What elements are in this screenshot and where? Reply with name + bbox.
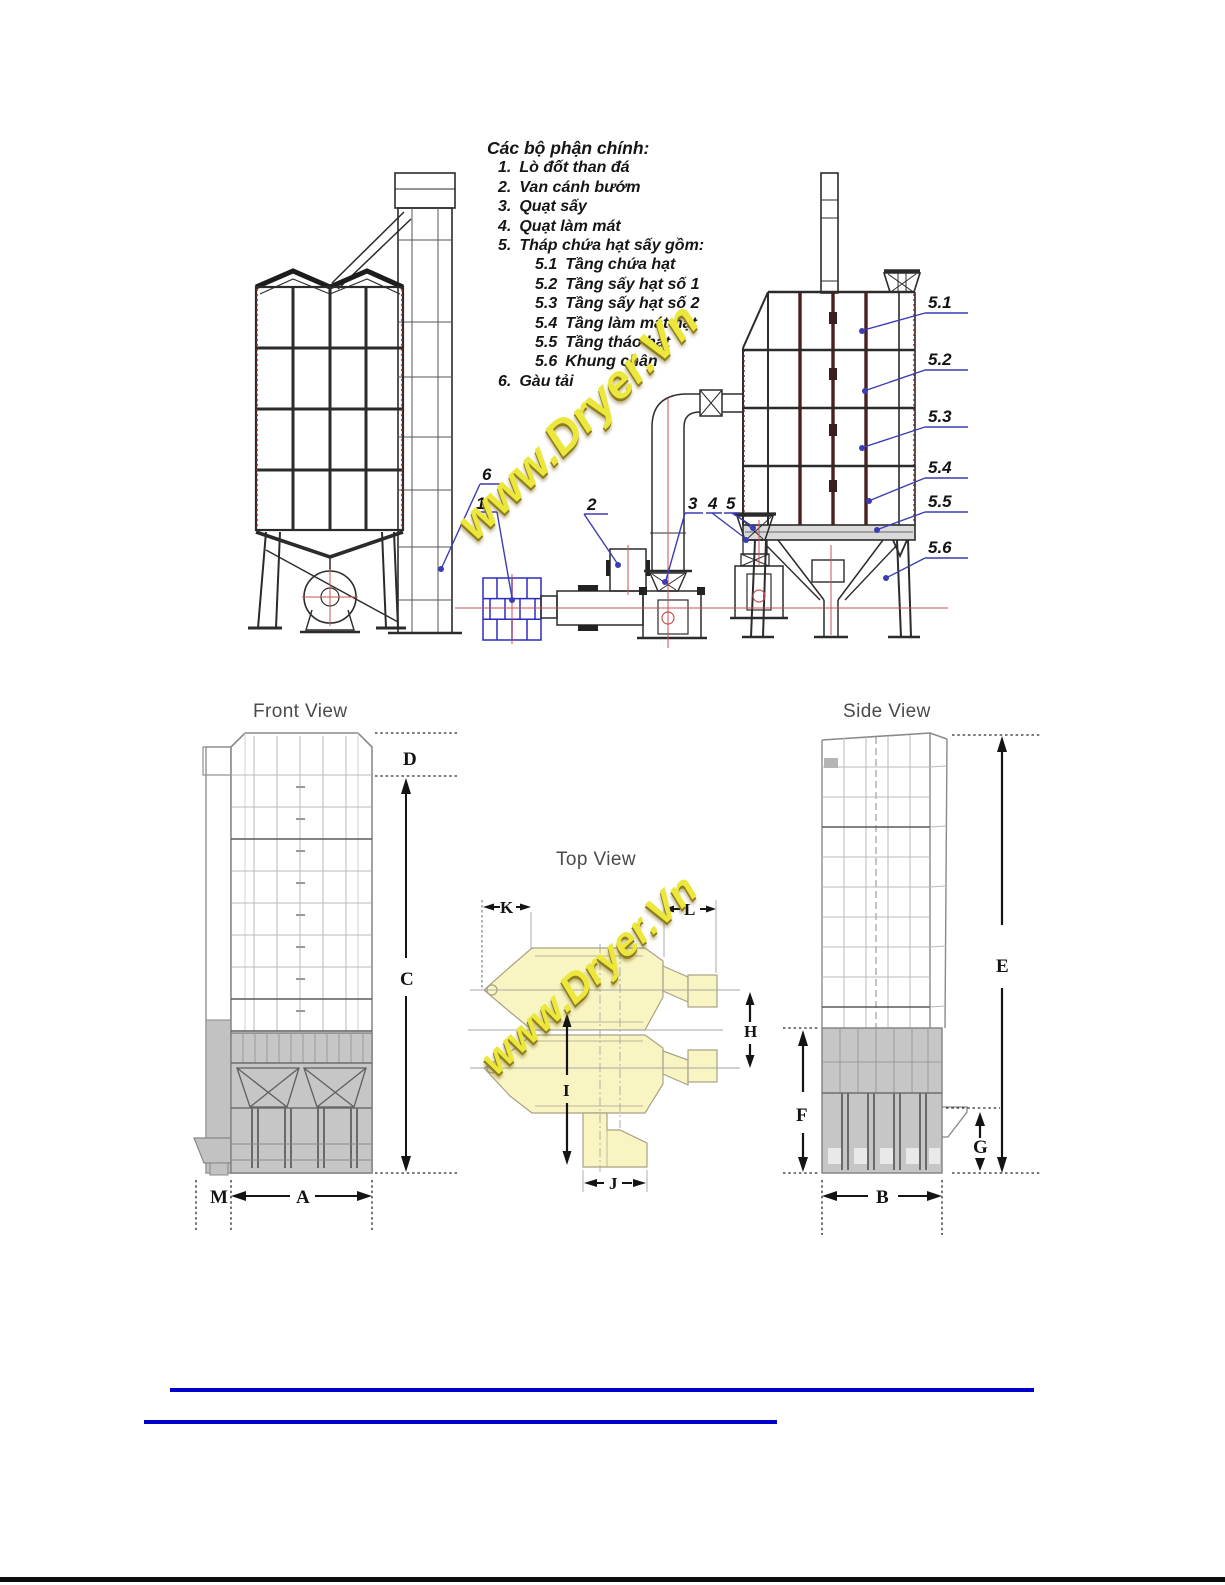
dim-label-M: M — [210, 1187, 228, 1208]
legend-item-1: 1.Lò đốt than đá — [487, 158, 704, 177]
legend-num: 5.6 — [535, 352, 557, 371]
dim-label-F: F — [796, 1105, 808, 1126]
legend-num: 6. — [498, 372, 511, 391]
legend-num: 5.4 — [535, 314, 557, 333]
hot-air-duct — [541, 549, 650, 631]
dim-label-A: A — [296, 1187, 310, 1208]
dim-label-B: B — [876, 1187, 889, 1208]
dim-label-G: G — [973, 1137, 988, 1158]
legend-num: 4. — [498, 217, 511, 236]
dim-label-C: C — [400, 969, 414, 990]
bottom-hopper — [778, 540, 883, 637]
legend-text: Tầng sấy hạt số 1 — [565, 275, 699, 294]
chimney — [821, 173, 838, 293]
side-view-drawing: E F G B — [783, 733, 1040, 1235]
legend-num: 5.1 — [535, 255, 557, 274]
legend-text: Quạt làm mát — [519, 217, 620, 236]
dim-label-E: E — [996, 956, 1009, 977]
legend-text: Lò đốt than đá — [519, 158, 629, 177]
bottom-blower-fan — [300, 569, 360, 632]
legend-text: Quạt sấy — [519, 197, 587, 216]
hyperlink-underline-1[interactable] — [170, 1388, 1034, 1392]
callout-5-4: 5.4 — [928, 458, 952, 477]
legend-item-5: 5.Tháp chứa hạt sấy gồm: — [487, 236, 704, 255]
vertical-pipe-elbow — [650, 390, 743, 571]
callout-5: 5 — [726, 494, 736, 513]
callout-5-5: 5.5 — [928, 492, 952, 511]
legend-item-3: 3.Quạt sấy — [487, 197, 704, 216]
sv-side-chute — [942, 1107, 967, 1137]
dim-label-H: H — [744, 1022, 757, 1041]
hyperlink-underline-2[interactable] — [144, 1420, 777, 1424]
legend-item-2: 2.Van cánh bướm — [487, 178, 704, 197]
callout-5-6: 5.6 — [928, 538, 952, 557]
legend-num: 5.3 — [535, 294, 557, 313]
callout-4: 4 — [707, 494, 718, 513]
callout-3: 3 — [688, 494, 698, 513]
legend-num: 5.2 — [535, 275, 557, 294]
legend-text: Gàu tải — [519, 372, 573, 391]
document-page: 6 1 2 3 4 5 5.1 5.2 5.3 5.4 5.5 5.6 — [0, 0, 1225, 1585]
grain-chute — [332, 212, 411, 289]
dim-label-K: K — [500, 898, 514, 917]
legend-title: Các bộ phận chính: — [487, 139, 704, 158]
tower-hopper — [256, 532, 403, 557]
dim-label-I: I — [563, 1081, 570, 1100]
dim-label-J: J — [609, 1174, 618, 1193]
callout-5-1: 5.1 — [928, 293, 952, 312]
front-view-title: Front View — [253, 701, 347, 723]
legend-text: Van cánh bướm — [519, 178, 640, 197]
legend-item-4: 4.Quạt làm mát — [487, 217, 704, 236]
callout-2: 2 — [586, 495, 597, 514]
right-tower-drawing — [730, 173, 920, 637]
bucket-elevator-head — [395, 173, 455, 208]
legend-num: 3. — [498, 197, 511, 216]
legend-num: 1. — [498, 158, 511, 177]
top-view-title: Top View — [556, 849, 636, 871]
legend-item-5-1: 5.1Tầng chứa hạt — [487, 255, 704, 274]
callout-5-3: 5.3 — [928, 407, 952, 426]
callout-5-2: 5.2 — [928, 350, 952, 369]
legend-text: Tầng chứa hạt — [565, 255, 675, 274]
tower-legs — [258, 532, 398, 628]
legend-text: Tháp chứa hạt sấy gồm: — [519, 236, 704, 255]
elevator-head-hopper — [884, 271, 920, 292]
dim-label-D: D — [403, 749, 417, 770]
tower-roof — [256, 271, 403, 287]
legend-num: 5.5 — [535, 333, 557, 352]
legend-num: 5. — [498, 236, 511, 255]
front-view-drawing: D C A M — [194, 733, 458, 1230]
legend-num: 2. — [498, 178, 511, 197]
side-view-title: Side View — [843, 701, 931, 723]
drying-fan — [637, 571, 707, 638]
page-border-bottom — [0, 1577, 1225, 1582]
left-tower-drawing — [248, 173, 462, 633]
